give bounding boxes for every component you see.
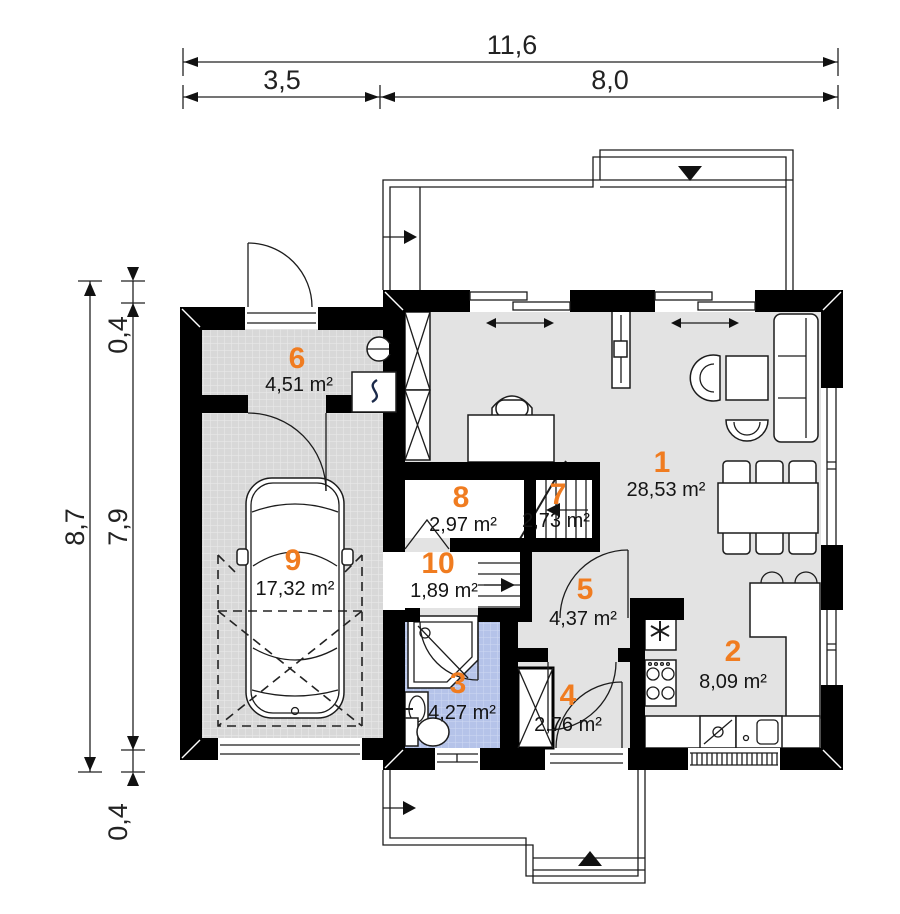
room-2-area: 8,09 m²: [699, 671, 767, 693]
dishwasher: [700, 716, 736, 748]
car-mirror: [237, 549, 248, 565]
dining-table: [718, 483, 818, 533]
room-2-number: 2: [725, 635, 742, 668]
room-8-area: 2,97 m²: [429, 514, 497, 536]
shower: [408, 616, 478, 688]
sofa: [774, 314, 818, 442]
dim-top-right-label: 8,0: [591, 65, 629, 95]
room-8-number: 8: [453, 481, 470, 514]
room-1-area: 28,53 m²: [627, 479, 706, 501]
porch-bottom: [383, 770, 645, 883]
room-9-area: 17,32 m²: [256, 578, 335, 600]
room-7-number: 7: [550, 478, 567, 511]
dim-top-left-label: 3,5: [263, 65, 301, 95]
room-4-area: 2,76 m²: [534, 714, 602, 736]
entrance-arrow-icon: [678, 166, 702, 181]
sink: [736, 716, 782, 748]
bottom-window-kitchen: [688, 748, 780, 770]
room-7-area: 2,73 m²: [522, 510, 590, 532]
bottom-window-bathroom: [435, 748, 480, 770]
room-3-number: 3: [450, 667, 467, 700]
tall-wardrobe: [405, 312, 430, 460]
dim-left-inner-label: 7,9: [103, 508, 133, 546]
desk: [468, 415, 554, 462]
coffee-table: [726, 356, 768, 400]
floor-door-gap: [383, 552, 405, 610]
tv-cabinet: [612, 310, 630, 388]
dimensions-top: 11,6 3,5 8,0: [183, 30, 838, 109]
dim-left-wall-top-label: 0,4: [103, 316, 133, 354]
dimensions-left: 8,7 0,4 7,9 0,4: [60, 267, 145, 841]
entry-door: [245, 243, 318, 328]
room-10-number: 10: [421, 547, 454, 580]
floor-plan-page: 1 28,53 m² 2 8,09 m² 3 4,27 m² 4 2,76 m²…: [0, 0, 900, 914]
boiler: [352, 372, 396, 412]
room-10-area: 1,89 m²: [410, 580, 478, 602]
porch-side-arrow-icon: [403, 801, 416, 815]
room-6-number: 6: [289, 342, 306, 375]
dim-left-total-label: 8,7: [60, 508, 90, 546]
terrace-side-arrow-icon: [404, 230, 417, 244]
car-mirror: [342, 549, 353, 565]
dim-top-total-label: 11,6: [487, 30, 538, 60]
dim-left-wall-bottom-label: 0,4: [103, 803, 133, 841]
room-1-number: 1: [654, 446, 671, 479]
room-4-number: 4: [560, 679, 577, 712]
room-3-area: 4,27 m²: [428, 702, 496, 724]
right-window-kitchen: [821, 610, 843, 685]
room-5-area: 4,37 m²: [549, 608, 617, 630]
garage-door-opening: [218, 740, 362, 758]
room-9-number: 9: [285, 544, 302, 577]
stove: [645, 660, 676, 706]
floor-plan: 1 28,53 m² 2 8,09 m² 3 4,27 m² 4 2,76 m²…: [0, 0, 900, 914]
room-5-number: 5: [577, 573, 594, 606]
right-window-living: [821, 388, 843, 545]
room-6-area: 4,51 m²: [265, 374, 333, 396]
terrace-top: [383, 150, 793, 290]
